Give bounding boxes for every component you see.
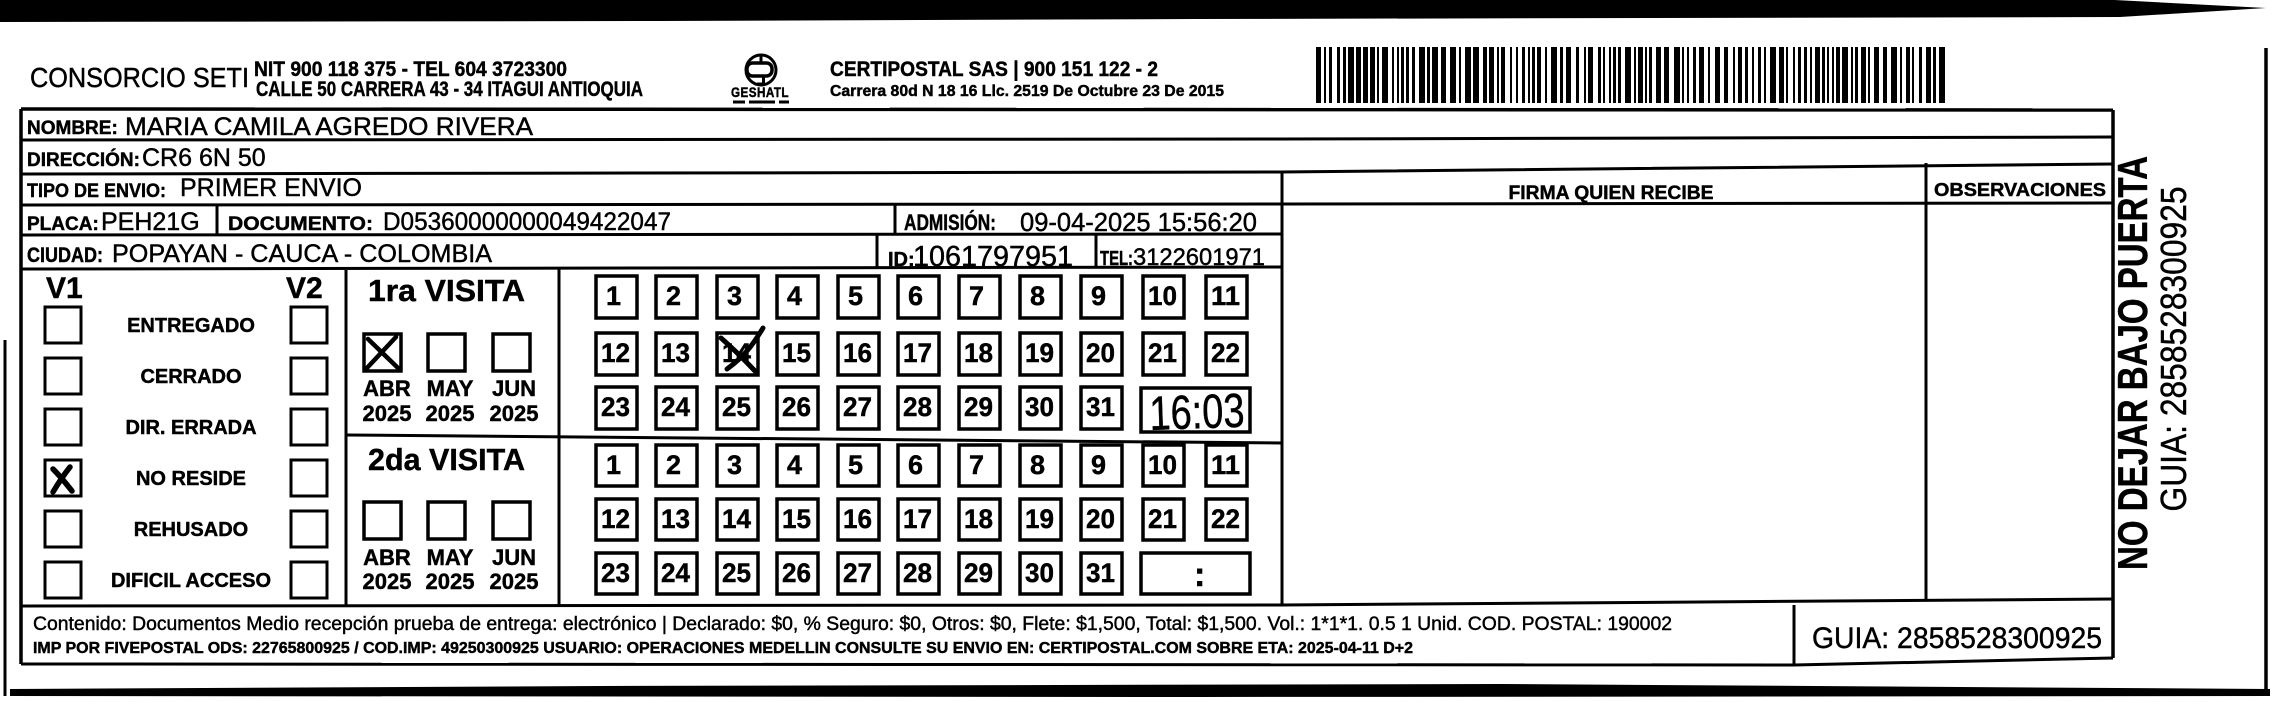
svg-text:25: 25 (722, 558, 751, 588)
svg-text:MAY: MAY (427, 376, 474, 401)
svg-text::: : (1194, 556, 1205, 594)
svg-text:24: 24 (661, 392, 690, 422)
svg-text:27: 27 (843, 558, 872, 588)
svg-text:CIUDAD:: CIUDAD: (27, 244, 103, 267)
svg-text:GUIA: 2858528300925: GUIA: 2858528300925 (1812, 622, 2102, 655)
svg-text:FIRMA QUIEN RECIBE: FIRMA QUIEN RECIBE (1509, 183, 1714, 204)
svg-text:18: 18 (964, 338, 993, 368)
svg-text:15: 15 (782, 504, 811, 534)
svg-text:POPAYAN - CAUCA - COLOMBIA: POPAYAN - CAUCA - COLOMBIA (112, 240, 492, 268)
svg-text:12: 12 (601, 338, 630, 368)
svg-text:ENTREGADO: ENTREGADO (127, 315, 255, 337)
svg-text:11: 11 (1211, 450, 1240, 480)
svg-text:2025: 2025 (426, 401, 475, 426)
svg-text:21: 21 (1148, 504, 1177, 534)
svg-text:10: 10 (1148, 450, 1177, 480)
svg-text:DIFICIL ACCESO: DIFICIL ACCESO (111, 570, 271, 592)
svg-text:6: 6 (908, 281, 923, 311)
svg-text:15: 15 (782, 338, 811, 368)
svg-text:11: 11 (1211, 281, 1240, 311)
svg-text:GUIA: 2858528300925: GUIA: 2858528300925 (2153, 187, 2194, 512)
svg-text:JUN: JUN (492, 376, 536, 401)
svg-text:22: 22 (1211, 504, 1240, 534)
svg-text:9: 9 (1091, 450, 1106, 480)
svg-text:17: 17 (903, 504, 932, 534)
svg-text:CERTIPOSTAL SAS | 900 151 122: CERTIPOSTAL SAS | 900 151 122 - 2 (830, 58, 1158, 81)
svg-text:26: 26 (782, 392, 811, 422)
svg-text:1ra VISITA: 1ra VISITA (368, 273, 525, 308)
svg-text:3: 3 (727, 450, 742, 480)
svg-text:22: 22 (1211, 338, 1240, 368)
svg-text:5: 5 (848, 281, 863, 311)
svg-text:3: 3 (727, 281, 742, 311)
svg-text:20: 20 (1086, 338, 1115, 368)
svg-text:NO DEJAR BAJO PUERTA: NO DEJAR BAJO PUERTA (2109, 156, 2156, 570)
svg-text:2025: 2025 (490, 569, 539, 594)
svg-text:29: 29 (964, 558, 993, 588)
svg-text:5: 5 (848, 450, 863, 480)
svg-text:28: 28 (903, 392, 932, 422)
svg-text:7: 7 (969, 450, 984, 480)
svg-text:2: 2 (666, 450, 681, 480)
svg-text:31: 31 (1086, 392, 1115, 422)
svg-text:8: 8 (1030, 450, 1045, 480)
svg-text:13: 13 (661, 338, 690, 368)
svg-text:ADMISIÓN:: ADMISIÓN: (904, 210, 996, 235)
svg-text:PRIMER ENVIO: PRIMER ENVIO (180, 174, 362, 202)
svg-text:DOCUMENTO:: DOCUMENTO: (228, 214, 373, 235)
svg-text:2025: 2025 (426, 569, 475, 594)
svg-text:21: 21 (1148, 338, 1177, 368)
svg-text:19: 19 (1025, 338, 1054, 368)
svg-text:4: 4 (787, 450, 802, 480)
svg-text:25: 25 (722, 392, 751, 422)
svg-text:23: 23 (601, 558, 630, 588)
svg-text:24: 24 (661, 558, 690, 588)
svg-text:MAY: MAY (427, 545, 474, 570)
svg-text:DIRECCIÓN:: DIRECCIÓN: (27, 149, 140, 171)
svg-text:30: 30 (1025, 558, 1054, 588)
svg-text:PEH21G: PEH21G (101, 208, 200, 236)
svg-text:CONSORCIO SETI: CONSORCIO SETI (30, 62, 249, 93)
svg-text:MARIA CAMILA AGREDO RIVERA: MARIA CAMILA AGREDO RIVERA (125, 113, 533, 141)
svg-text:28: 28 (903, 558, 932, 588)
svg-text:18: 18 (964, 504, 993, 534)
svg-text:REHUSADO: REHUSADO (134, 519, 248, 541)
svg-text:ABR: ABR (363, 376, 411, 401)
svg-text:D05360000000049422047: D05360000000049422047 (383, 208, 671, 236)
svg-text:8: 8 (1030, 281, 1045, 311)
svg-text:NOMBRE:: NOMBRE: (27, 118, 118, 139)
svg-text:DIR. ERRADA: DIR. ERRADA (125, 417, 256, 439)
svg-text:ABR: ABR (363, 545, 411, 570)
svg-text:CALLE 50 CARRERA 43 - 34 ITAGU: CALLE 50 CARRERA 43 - 34 ITAGUI ANTIOQUI… (256, 78, 643, 101)
svg-text:4: 4 (787, 281, 802, 311)
svg-text:1: 1 (606, 281, 621, 311)
svg-text:23: 23 (601, 392, 630, 422)
svg-text:JUN: JUN (492, 545, 536, 570)
svg-text:16: 16 (843, 504, 872, 534)
svg-text:2da VISITA: 2da VISITA (368, 442, 525, 477)
svg-text:1: 1 (606, 450, 621, 480)
svg-text:3122601971: 3122601971 (1133, 244, 1265, 271)
svg-text:1061797951: 1061797951 (913, 241, 1073, 273)
svg-text:PLACA:: PLACA: (27, 214, 99, 235)
svg-text:10: 10 (1148, 281, 1177, 311)
svg-text:CR6 6N 50: CR6 6N 50 (142, 144, 266, 172)
svg-text:V1: V1 (46, 272, 83, 305)
svg-text:20: 20 (1086, 504, 1115, 534)
svg-text:29: 29 (964, 392, 993, 422)
svg-text:2: 2 (666, 281, 681, 311)
svg-text:ID:: ID: (888, 249, 915, 271)
svg-text:13: 13 (661, 504, 690, 534)
svg-text:19: 19 (1025, 504, 1054, 534)
svg-text:Contenido: Documentos Medio re: Contenido: Documentos Medio recepción pr… (33, 613, 1672, 635)
svg-text:7: 7 (969, 281, 984, 311)
svg-text:OBSERVACIONES: OBSERVACIONES (1934, 180, 2106, 200)
svg-text:2025: 2025 (490, 401, 539, 426)
svg-text:TEL:: TEL: (1100, 248, 1133, 270)
svg-text:9: 9 (1091, 281, 1106, 311)
svg-text:16: 16 (843, 338, 872, 368)
svg-text:30: 30 (1025, 392, 1054, 422)
svg-text:17: 17 (903, 338, 932, 368)
svg-text:27: 27 (843, 392, 872, 422)
svg-text:IMP POR FIVEPOSTAL ODS: 227658: IMP POR FIVEPOSTAL ODS: 22765800925 / CO… (33, 640, 1413, 657)
svg-text:14: 14 (722, 504, 751, 534)
svg-text:2025: 2025 (363, 569, 412, 594)
svg-text:2025: 2025 (363, 401, 412, 426)
svg-text:CERRADO: CERRADO (140, 366, 241, 388)
svg-text:12: 12 (601, 504, 630, 534)
svg-text:09-04-2025 15:56:20: 09-04-2025 15:56:20 (1020, 207, 1257, 237)
svg-text:31: 31 (1086, 558, 1115, 588)
svg-text:6: 6 (908, 450, 923, 480)
svg-text:16:03: 16:03 (1149, 385, 1246, 441)
svg-text:Carrera 80d N 18 16 Llc. 2519: Carrera 80d N 18 16 Llc. 2519 De Octubre… (830, 83, 1224, 100)
svg-text:TIPO DE ENVIO:: TIPO DE ENVIO: (27, 181, 166, 202)
svg-text:NO RESIDE: NO RESIDE (136, 468, 246, 490)
svg-text:V2: V2 (286, 272, 323, 305)
svg-text:26: 26 (782, 558, 811, 588)
svg-text:GESHATL: GESHATL (731, 85, 789, 100)
